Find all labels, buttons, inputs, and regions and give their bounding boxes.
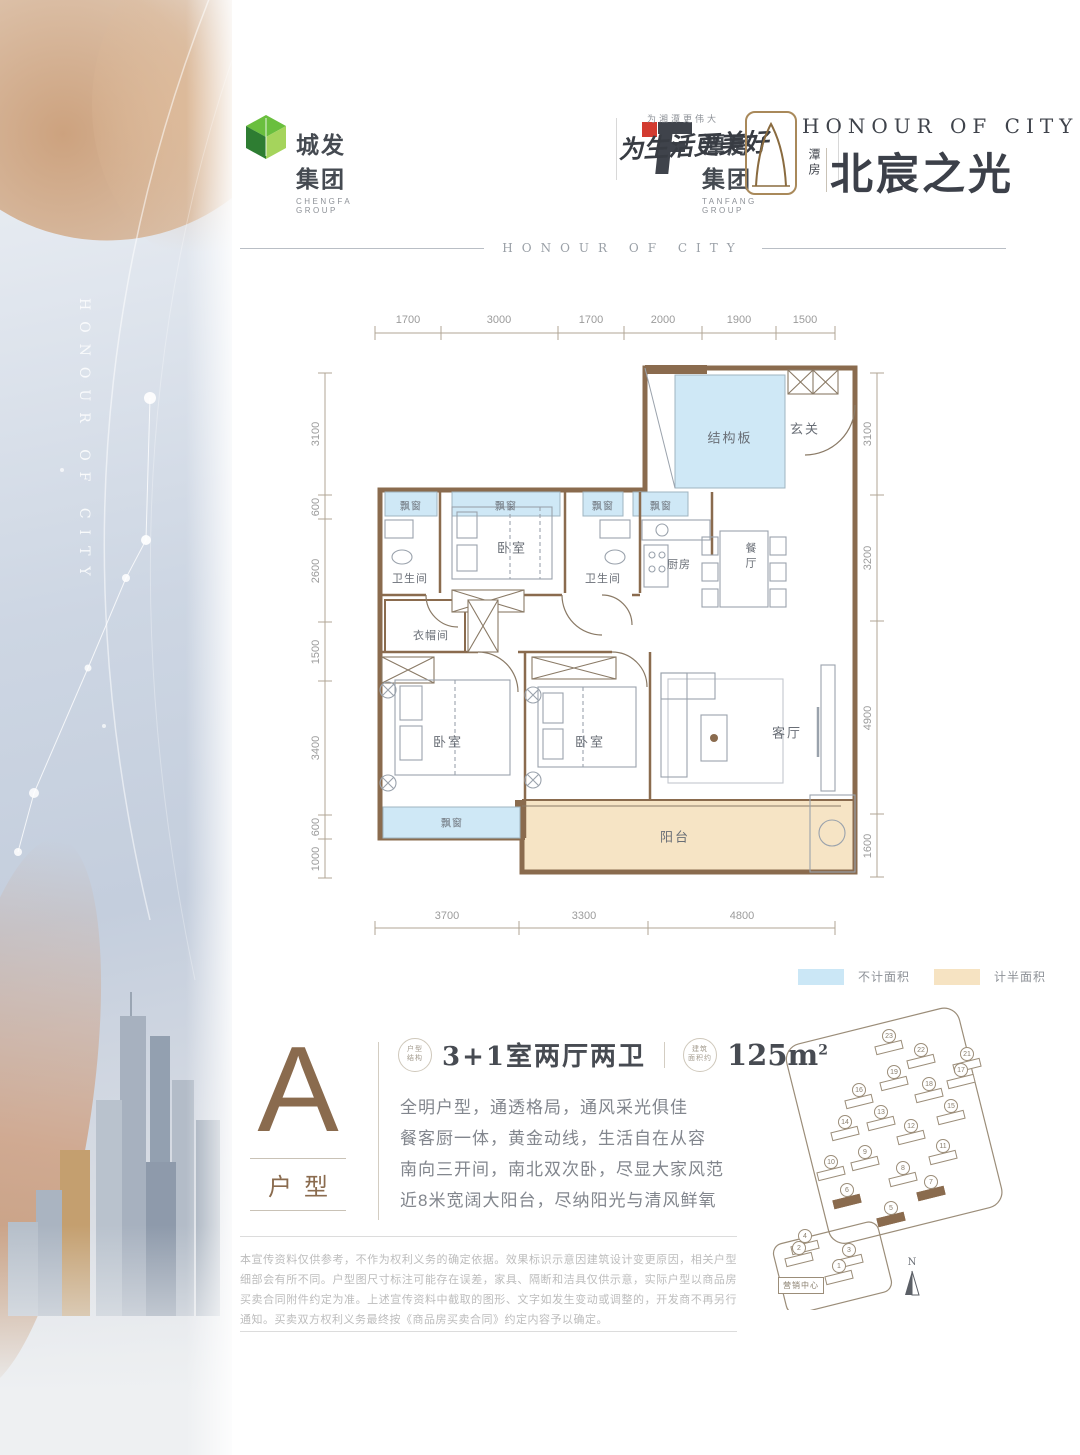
north-arrow-icon: [898, 1268, 926, 1298]
svg-text:4900: 4900: [862, 706, 874, 730]
room-label-kitchen: 厨房: [667, 556, 691, 572]
svg-text:1000: 1000: [310, 847, 322, 871]
sidebar-vertical-title: HONOUR OF CITY: [76, 298, 92, 587]
header-divider: [616, 118, 617, 180]
site-plan: 23222119181716151413121110987654321 营销中心…: [770, 1005, 1020, 1310]
room-label-bath: 卫生间: [392, 570, 428, 586]
spec-separator: [664, 1042, 665, 1068]
inner-walls: [380, 492, 855, 838]
flyer-page: HONOUR OF CITY 城发集团 CHENGFA GROUP 潭房集团 T…: [0, 0, 1080, 1455]
room-label-bay: 飘窗: [400, 498, 422, 513]
svg-text:3700: 3700: [435, 910, 459, 922]
room-label-bay: 飘窗: [495, 498, 517, 513]
svg-text:2600: 2600: [310, 559, 322, 583]
chengfa-group-sub: CHENGFA GROUP: [296, 197, 352, 215]
room-label-bedroom: 卧室: [433, 732, 463, 751]
svg-text:1600: 1600: [862, 834, 874, 858]
chengfa-logo-icon: [243, 112, 289, 162]
legend-swatch-halfarea: [934, 969, 980, 985]
section-divider-text: HONOUR OF CITY: [484, 241, 761, 255]
unit-letter-block: A 户型: [248, 1028, 348, 1219]
north-arrow: N: [898, 1257, 926, 1303]
stamp-line: 结构: [407, 1055, 423, 1064]
spec-stamp-structure: 户型 结构: [398, 1038, 432, 1072]
unit-vertical-separator: [378, 1042, 379, 1220]
svg-text:1500: 1500: [310, 640, 322, 664]
room-label-bay: 飘窗: [650, 498, 672, 513]
svg-text:1500: 1500: [793, 314, 817, 326]
legend-label-noarea: 不计面积: [858, 968, 910, 985]
room-label-structure: 结构板: [707, 428, 752, 447]
floor-plan: 1700 3000 1700 2000 1900 1500 3100 600 2…: [300, 295, 900, 965]
room-label-living: 客厅: [772, 723, 802, 742]
stamp-line: 户型: [407, 1046, 423, 1055]
room-label-balcony: 阳台: [660, 827, 690, 846]
room-label-entry: 玄关: [790, 419, 820, 438]
arch-gate-icon: [744, 110, 798, 198]
site-plan-outline: [770, 1005, 1020, 1310]
north-label: N: [898, 1257, 926, 1268]
room-label-bedroom: 卧室: [575, 732, 605, 751]
svg-text:3200: 3200: [862, 546, 874, 570]
brand-cn-title: 北宸之光: [830, 140, 1014, 202]
svg-text:3100: 3100: [862, 422, 874, 446]
brand-cn-small: 潭房: [806, 148, 827, 192]
svg-text:600: 600: [310, 818, 322, 836]
svg-text:600: 600: [310, 498, 322, 516]
unit-rule: [250, 1158, 346, 1159]
chengfa-group-name: 城发集团: [296, 126, 352, 194]
legend-label-halfarea: 计半面积: [994, 968, 1046, 985]
section-divider: HONOUR OF CITY: [240, 241, 1006, 255]
room-label-cloak: 衣帽间: [413, 627, 449, 643]
brand-block: HONOUR OF CITY 潭房 北宸之光: [744, 104, 1044, 204]
brand-english: HONOUR OF CITY: [802, 114, 1078, 138]
disclaimer-text: 本宣传资料仅供参考，不作为权利义务的确定依据。效果标识示意因建筑设计变更原因，相…: [240, 1250, 737, 1330]
unit-letter: A: [248, 1028, 348, 1150]
stamp-line: 面积约: [688, 1055, 712, 1064]
room-label-bath: 卫生间: [585, 570, 621, 586]
unit-spec-text: 3+1室两厅两卫: [442, 1036, 646, 1073]
unit-description: 全明户型，通透格局，通风采光俱佳 餐客厨一体，黄金动线，生活自在从容 南向三开间…: [400, 1092, 745, 1216]
slogan-calligraphy: 为生活更美好: [617, 124, 749, 167]
slogan-block: 为湘潭更伟大 为生活更美好: [618, 112, 748, 163]
sidebar-blend: [186, 0, 232, 1455]
svg-text:4800: 4800: [730, 910, 754, 922]
unit-rule: [250, 1210, 346, 1211]
room-label-bedroom: 卧室: [497, 538, 527, 557]
spec-stamp-area: 建筑 面积约: [683, 1038, 717, 1072]
desc-line: 全明户型，通透格局，通风采光俱佳: [400, 1092, 745, 1123]
stamp-line: 建筑: [692, 1046, 708, 1055]
plan-legend: 不计面积 计半面积: [798, 968, 1056, 985]
svg-text:3300: 3300: [572, 910, 596, 922]
svg-text:3000: 3000: [487, 314, 511, 326]
room-label-bay: 飘窗: [592, 498, 614, 513]
desc-line: 餐客厨一体，黄金动线，生活自在从容: [400, 1123, 745, 1154]
legend-swatch-noarea: [798, 969, 844, 985]
svg-text:2000: 2000: [651, 314, 675, 326]
floor-plan-drawing: 1700 3000 1700 2000 1900 1500 3100 600 2…: [300, 295, 900, 965]
svg-text:1700: 1700: [579, 314, 603, 326]
unit-type-label: 户型: [248, 1167, 348, 1202]
svg-text:3100: 3100: [310, 422, 322, 446]
slogan-small-text: 为湘潭更伟大: [618, 112, 748, 125]
svg-text:1900: 1900: [727, 314, 751, 326]
room-label-dining: 餐厅: [742, 542, 758, 572]
decor-sidebar: HONOUR OF CITY: [0, 0, 232, 1455]
svg-text:3400: 3400: [310, 736, 322, 760]
desc-line: 南向三开间，南北双次卧，尽显大家风范: [400, 1154, 745, 1185]
desc-line: 近8米宽阔大阳台，尽纳阳光与清风鲜氧: [400, 1185, 745, 1216]
svg-text:1700: 1700: [396, 314, 420, 326]
disclaimer-rule-top: [240, 1236, 737, 1237]
unit-spec-row: 户型 结构 3+1室两厅两卫 建筑 面积约 125m2: [398, 1036, 828, 1073]
marketing-center-label: 营销中心: [778, 1277, 824, 1294]
disclaimer-rule-bottom: [240, 1331, 737, 1332]
room-label-bay: 飘窗: [441, 815, 463, 830]
